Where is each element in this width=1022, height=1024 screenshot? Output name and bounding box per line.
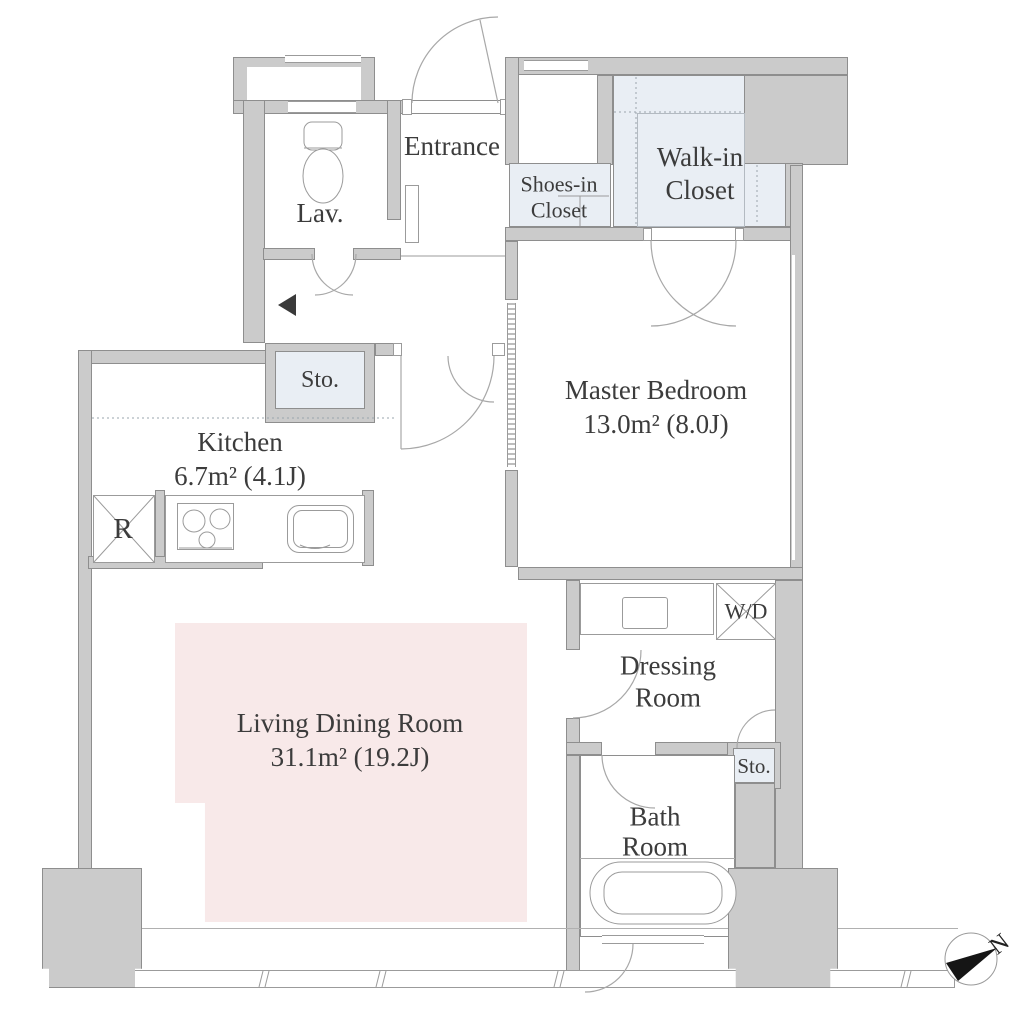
- balcony-door-ticks: [259, 971, 911, 987]
- stove-burner: [199, 532, 215, 548]
- shoes-closet-label: Shoes-in Closet: [521, 172, 598, 225]
- master-bedroom-label: Master Bedroom 13.0m² (8.0J): [565, 373, 747, 441]
- compass: N: [945, 929, 1015, 985]
- master-bedroom-area: 13.0m² (8.0J): [565, 407, 747, 441]
- dressing-room-label: Dressing Room: [620, 650, 716, 715]
- storage-hall-label: Sto.: [301, 365, 339, 395]
- walkin-closet-line1: Walk-in: [657, 141, 743, 174]
- shoes-closet-line2: Closet: [521, 198, 598, 224]
- living-dining-label: Living Dining Room 31.1m² (19.2J): [237, 706, 464, 774]
- kitchen-name: Kitchen: [174, 425, 306, 459]
- dressing-room-line1: Dressing: [620, 650, 716, 682]
- lav-label: Lav.: [297, 197, 344, 231]
- plan-linework: N: [0, 0, 1022, 1024]
- kitchen-area: 6.7m² (4.1J): [174, 459, 306, 493]
- bathtub: [590, 862, 736, 924]
- bath-room-line1: Bath: [622, 802, 688, 832]
- toilet-tank: [304, 122, 342, 150]
- bath-room-line2: Room: [622, 832, 688, 862]
- washer-dryer-label: W/D: [725, 597, 768, 625]
- refrigerator-label: R: [113, 511, 132, 547]
- dressing-room-line2: Room: [620, 682, 716, 714]
- dashed-guide-lines: [92, 77, 757, 418]
- floor-plan: N Lav. Entrance Shoes-in Closet Walk-in …: [0, 0, 1022, 1024]
- toilet-bowl: [303, 149, 343, 203]
- shoes-closet-line1: Shoes-in: [521, 172, 598, 198]
- bath-room-label: Bath Room: [622, 802, 688, 861]
- entry-direction-marker: [278, 294, 296, 316]
- walkin-closet-line2: Closet: [657, 174, 743, 207]
- living-dining-area: 31.1m² (19.2J): [237, 740, 464, 774]
- storage-dressing-label: Sto.: [737, 753, 770, 779]
- kitchen-label: Kitchen 6.7m² (4.1J): [174, 425, 306, 493]
- master-bedroom-name: Master Bedroom: [565, 373, 747, 407]
- walkin-closet-label: Walk-in Closet: [657, 141, 743, 207]
- stove-burner: [183, 510, 205, 532]
- living-dining-name: Living Dining Room: [237, 706, 464, 740]
- stove-burner: [210, 509, 230, 529]
- entrance-label: Entrance: [404, 130, 500, 164]
